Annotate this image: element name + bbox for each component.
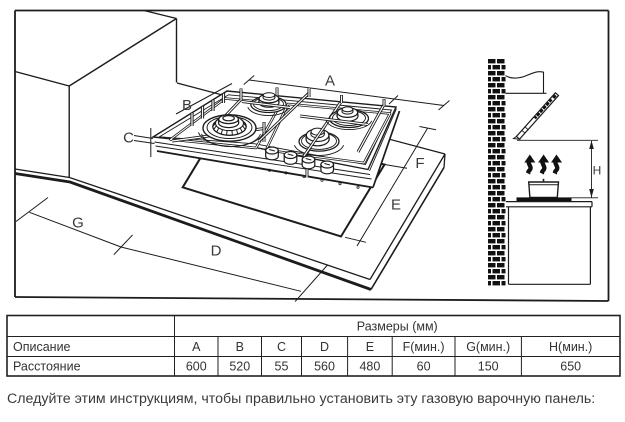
svg-text:E: E	[391, 196, 401, 213]
svg-text:600: 600	[186, 360, 207, 374]
svg-text:Следуйте этим инструкциям, что: Следуйте этим инструкциям, чтобы правиль…	[7, 391, 595, 407]
svg-text:B: B	[182, 97, 192, 114]
svg-text:D: D	[211, 242, 222, 259]
svg-text:F: F	[415, 155, 424, 172]
svg-text:55: 55	[275, 360, 289, 374]
svg-text:Размеры (мм): Размеры (мм)	[357, 320, 438, 334]
svg-text:A: A	[192, 340, 201, 354]
svg-text:Расстояние: Расстояние	[13, 360, 81, 374]
svg-text:150: 150	[478, 360, 499, 374]
svg-text:C: C	[277, 340, 286, 354]
svg-text:D: D	[320, 340, 329, 354]
svg-text:Описание: Описание	[13, 340, 71, 354]
svg-text:60: 60	[417, 360, 431, 374]
svg-text:C: C	[123, 130, 134, 147]
svg-text:G: G	[72, 214, 84, 231]
svg-text:480: 480	[359, 360, 380, 374]
svg-text:E: E	[366, 340, 374, 354]
svg-text:G(мин.): G(мин.)	[466, 340, 510, 354]
svg-text:B: B	[236, 340, 244, 354]
svg-text:A: A	[325, 73, 335, 90]
svg-text:650: 650	[560, 360, 581, 374]
svg-text:520: 520	[229, 360, 250, 374]
svg-text:H(мин.): H(мин.)	[549, 340, 592, 354]
svg-text:H: H	[593, 164, 602, 178]
svg-text:560: 560	[314, 360, 335, 374]
svg-text:F(мин.): F(мин.)	[403, 340, 445, 354]
